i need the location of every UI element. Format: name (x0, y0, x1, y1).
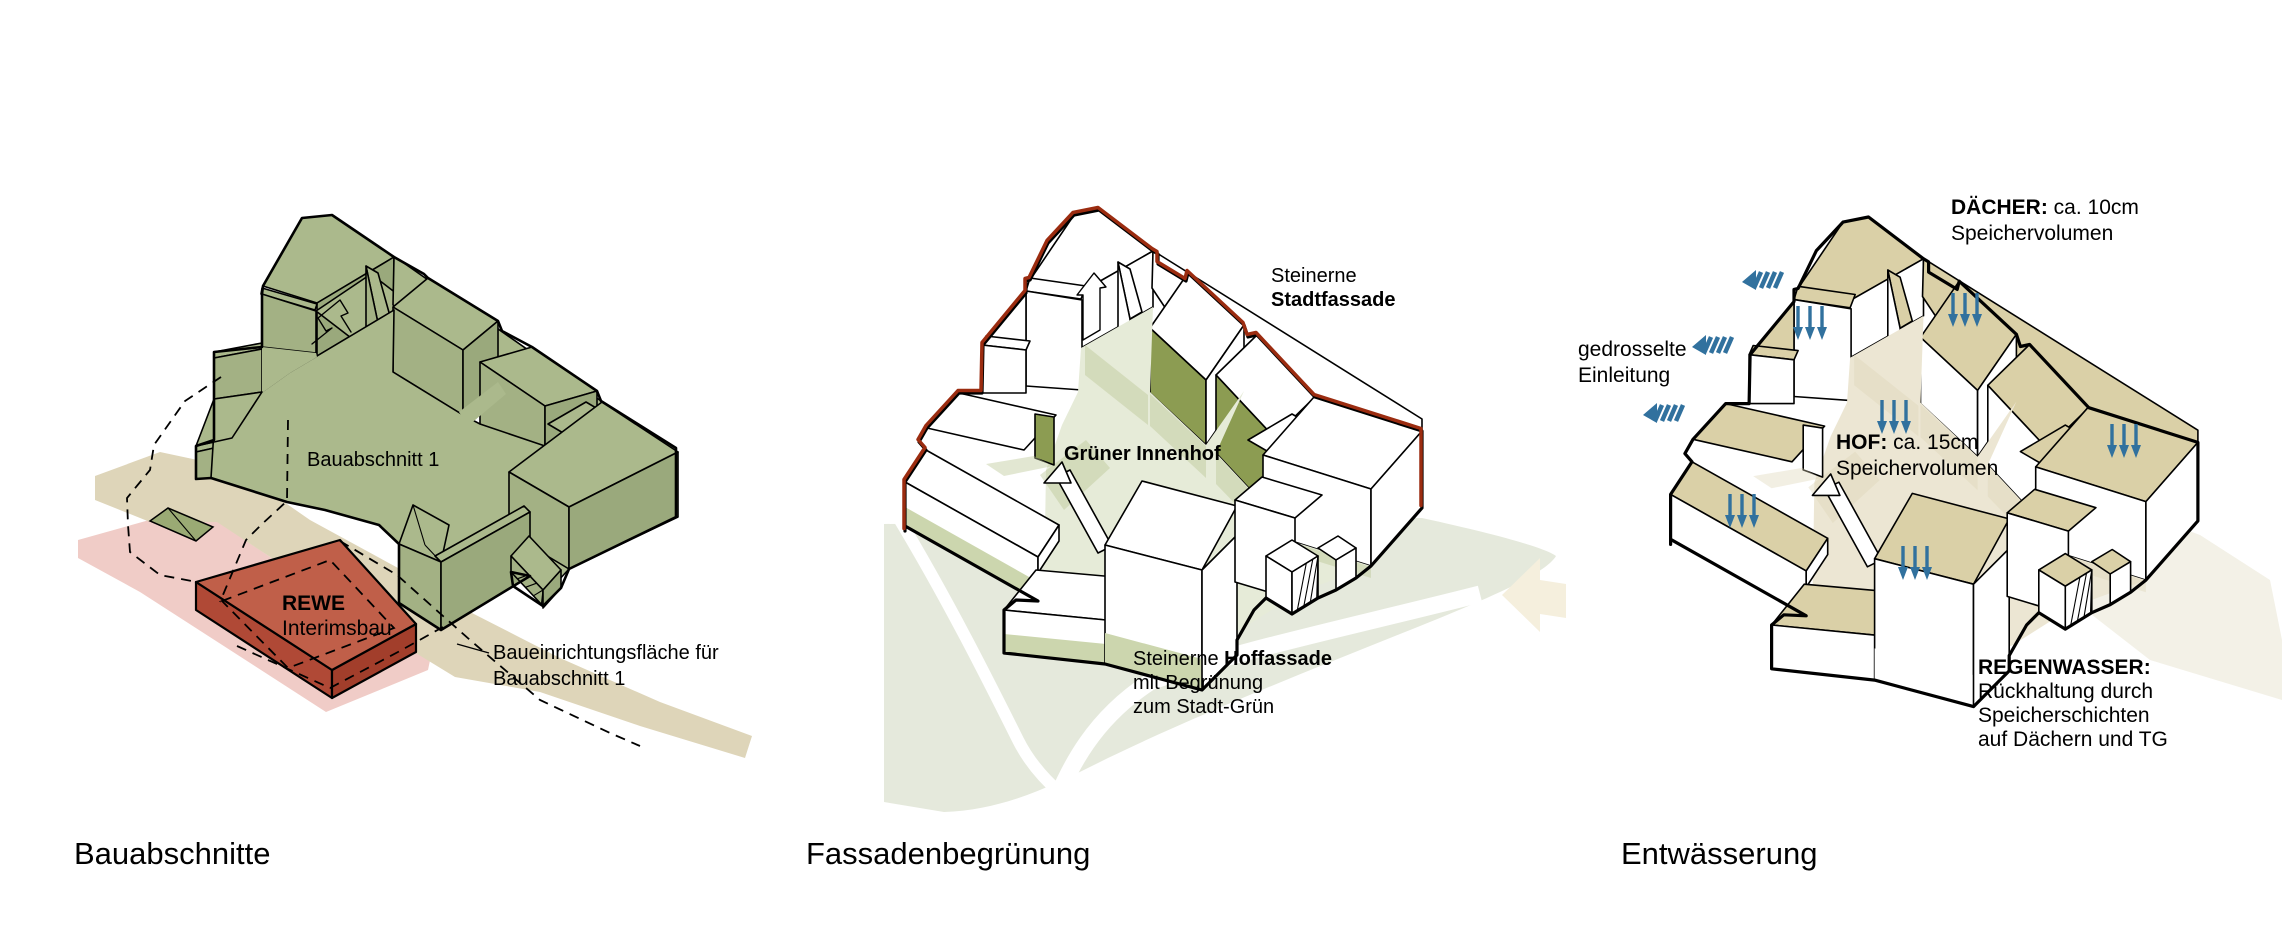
svg-text:REWE: REWE (282, 592, 345, 615)
svg-text:REGENWASSER:: REGENWASSER: (1978, 656, 2151, 679)
svg-text:auf Dächern und TG: auf Dächern und TG (1978, 728, 2168, 751)
svg-text:Speichervolumen: Speichervolumen (1836, 457, 1998, 480)
svg-text:gedrosselte: gedrosselte (1578, 338, 1687, 361)
svg-text:mit Begrünung: mit Begrünung (1133, 672, 1263, 694)
svg-text:HOF: ca. 15cm: HOF: ca. 15cm (1836, 431, 1978, 454)
svg-text:zum Stadt-Grün: zum Stadt-Grün (1133, 696, 1274, 718)
svg-text:Grüner Innenhof: Grüner Innenhof (1064, 443, 1221, 465)
svg-text:Entwässerung: Entwässerung (1621, 836, 1817, 871)
svg-text:Interimsbau: Interimsbau (282, 617, 392, 640)
svg-text:Fassadenbegrünung: Fassadenbegrünung (806, 836, 1090, 871)
svg-text:Bauabschnitt 1: Bauabschnitt 1 (493, 668, 625, 690)
svg-text:Einleitung: Einleitung (1578, 364, 1670, 387)
svg-text:Speicherschichten: Speicherschichten (1978, 704, 2150, 727)
svg-text:Steinerne: Steinerne (1271, 265, 1357, 287)
svg-text:Rückhaltung durch: Rückhaltung durch (1978, 680, 2153, 703)
svg-text:Speichervolumen: Speichervolumen (1951, 222, 2113, 245)
svg-text:Stadtfassade: Stadtfassade (1271, 289, 1396, 311)
svg-text:DÄCHER: ca. 10cm: DÄCHER: ca. 10cm (1951, 196, 2139, 219)
svg-text:Steinerne Hoffassade: Steinerne Hoffassade (1133, 648, 1332, 670)
svg-text:Bauabschnitte: Bauabschnitte (74, 836, 270, 871)
svg-text:Bauabschnitt 1: Bauabschnitt 1 (307, 449, 439, 471)
svg-text:Baueinrichtungsfläche für: Baueinrichtungsfläche für (493, 642, 719, 664)
